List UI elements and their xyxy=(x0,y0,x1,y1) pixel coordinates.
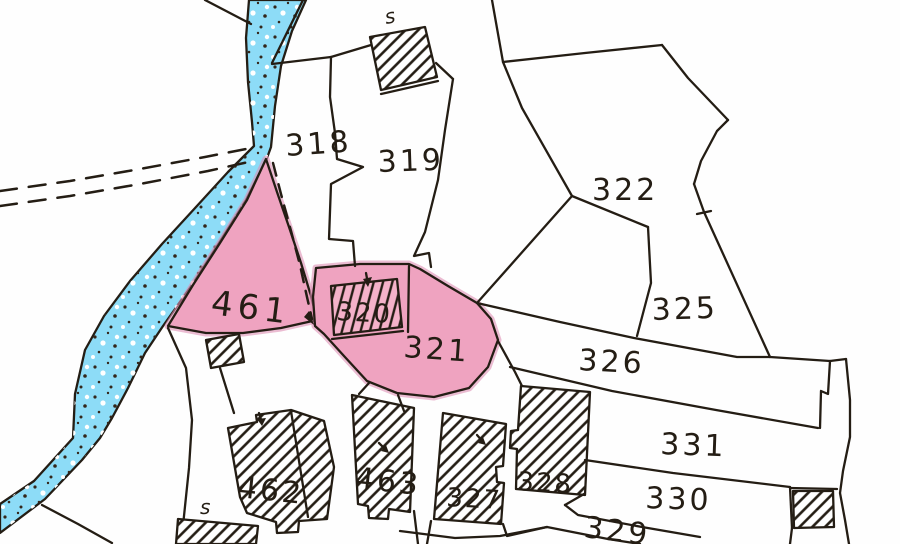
parcel-label-320: 320 xyxy=(336,297,393,330)
parcel-label-327: 327 xyxy=(446,483,503,516)
building-461-small-hatched xyxy=(206,334,244,368)
parcel-label-322: 322 xyxy=(592,173,658,208)
parcel-label-325: 325 xyxy=(651,291,718,328)
parcel-label-462: 462 xyxy=(236,470,306,512)
parcel-divider-320-321 xyxy=(408,266,409,332)
cadastral-map-svg: 318 319 322 325 326 331 330 329 461 320 … xyxy=(0,0,900,544)
parcel-label-319: 319 xyxy=(377,143,444,180)
annotation-s-bottom: s xyxy=(200,495,210,519)
parcel-label-331: 331 xyxy=(660,427,727,464)
parcel-label-321: 321 xyxy=(402,330,471,370)
parcel-label-318: 318 xyxy=(284,124,353,164)
building-right-small-topline xyxy=(790,488,837,489)
building-right-small-hatched xyxy=(793,491,834,528)
parcel-label-330: 330 xyxy=(645,481,712,518)
parcel-label-463: 463 xyxy=(353,461,423,503)
cadastral-map-canvas: 318 319 322 325 326 331 330 329 461 320 … xyxy=(0,0,900,544)
parcel-label-326: 326 xyxy=(578,343,646,381)
parcel-label-328: 328 xyxy=(517,467,574,500)
